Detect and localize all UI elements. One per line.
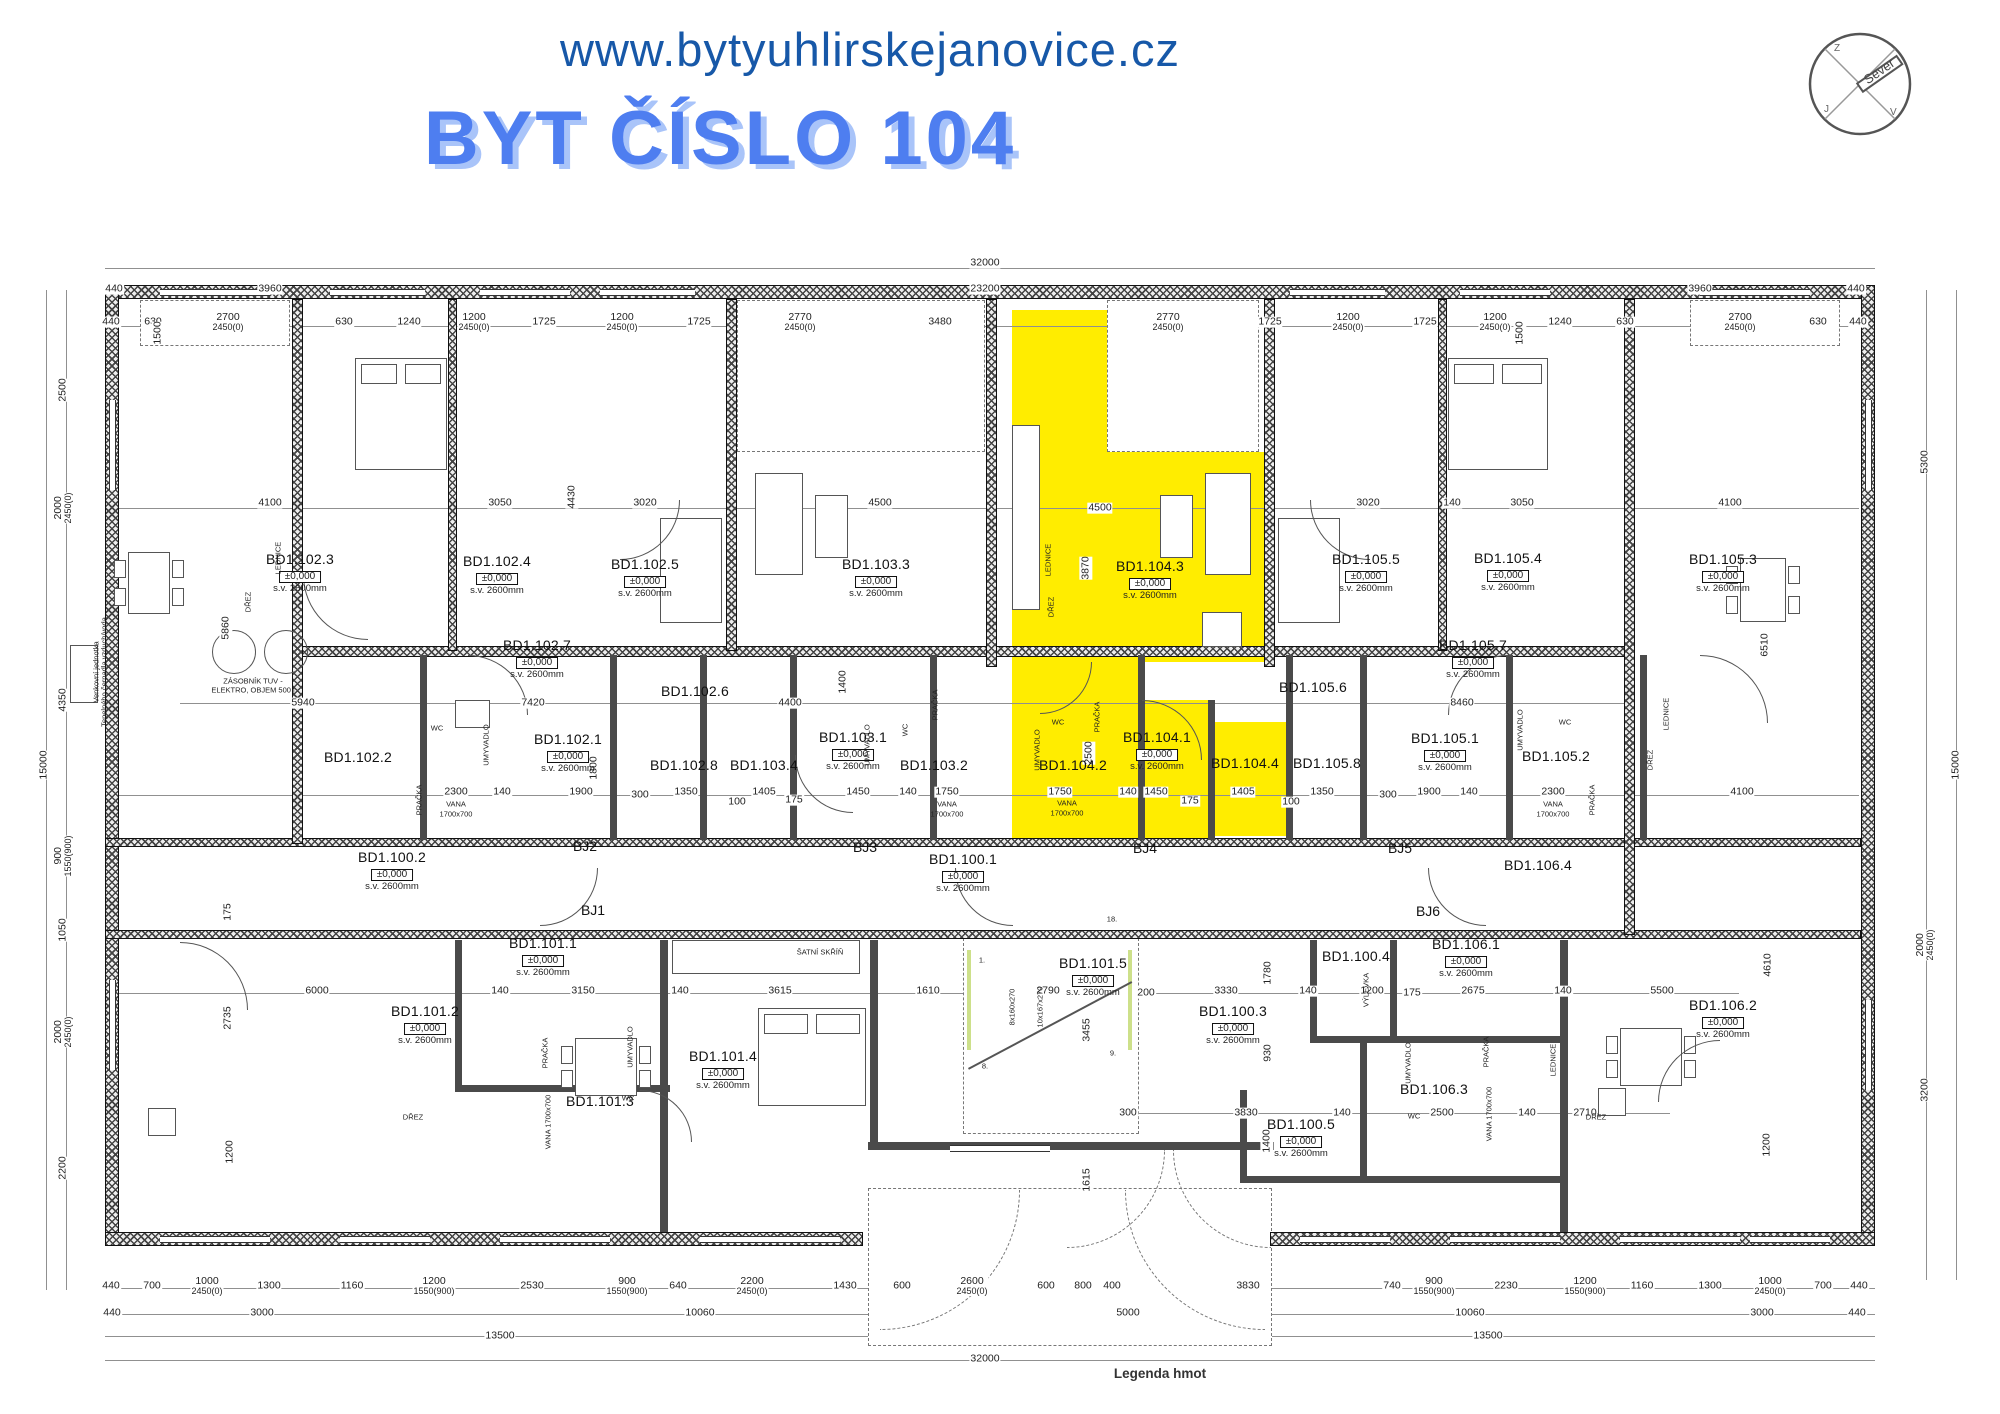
fixture-note: DŘEZ (1646, 750, 1654, 770)
dim-label: 10002450(0) (190, 1276, 223, 1296)
dim-label: 1500 (1514, 321, 1527, 344)
room-label: BD1.103.4 (730, 758, 798, 773)
dim-label: 27002450(0) (1723, 312, 1756, 332)
dim-label: 1240 (1547, 317, 1572, 328)
room-code: BD1.102.2 (324, 750, 392, 765)
room-clear-height: s.v. 2600mm (391, 1036, 459, 1046)
dim-label: 3615 (767, 986, 792, 997)
dim-label: 1405 (751, 787, 776, 798)
partition-wall (1360, 1040, 1367, 1180)
dim-label: 1300 (1697, 1281, 1722, 1292)
chair (639, 1070, 651, 1088)
partition-wall (610, 655, 617, 840)
dim-label: 800 (1073, 1281, 1093, 1292)
window (500, 1236, 610, 1243)
fixture-note: UMYVADLO (863, 724, 871, 766)
dim-label: 1240 (396, 317, 421, 328)
room-clear-height: s.v. 2600mm (1474, 583, 1542, 593)
door-arc (180, 942, 248, 1010)
room-code: BD1.106.1 (1432, 937, 1500, 952)
room-code: BD1.100.3 (1199, 1004, 1267, 1019)
room-label: BD1.106.3 (1400, 1082, 1468, 1097)
dim-sublabel: 2450(0) (64, 492, 73, 523)
dim-label: 10060 (684, 1308, 715, 1319)
wall (1624, 299, 1635, 935)
fixture-note: DŘEZ (1047, 597, 1055, 617)
room-code: BD1.105.5 (1332, 552, 1400, 567)
dim-label: 175 (1402, 988, 1422, 999)
dim-label: 9001550(900) (52, 835, 74, 876)
fixture-note: 18. (1107, 915, 1117, 923)
room-clear-height: s.v. 2600mm (1411, 763, 1479, 773)
dim-sublabel: 2450(0) (1724, 323, 1755, 332)
dim-label: 6510 (1759, 633, 1772, 656)
dim-label: 3050 (1509, 498, 1534, 509)
pillow (764, 1014, 808, 1034)
dim-label: 27702450(0) (783, 312, 816, 332)
room-elevation: ±0,000 (624, 576, 667, 589)
dim-label: 140 (1118, 787, 1138, 798)
dim-label: 1725 (1412, 317, 1437, 328)
door-arc (1700, 655, 1768, 723)
window (1450, 1236, 1560, 1243)
window (950, 1145, 1050, 1152)
room-label: BD1.102.6 (661, 684, 729, 699)
dim-label: 2200 (57, 1156, 70, 1179)
dim-label: 12002450(0) (457, 312, 490, 332)
partition-wall (868, 1142, 1274, 1150)
fixture-note: WC (1052, 718, 1065, 726)
dim-label: 12001550(900) (412, 1276, 455, 1296)
room-label: BD1.102.1±0,000s.v. 2600mm (534, 732, 602, 774)
room-clear-height: s.v. 2600mm (1432, 969, 1500, 979)
dim-label: 1160 (340, 1281, 365, 1292)
dim-label: 1900 (568, 787, 593, 798)
fixture-note: VANA (446, 800, 466, 808)
room-label: BD1.106.2±0,000s.v. 2600mm (1689, 998, 1757, 1040)
room-code: BD1.106.2 (1689, 998, 1757, 1013)
flyer-page: www.bytyuhlirskejanovice.cz BYT ČÍSLO 10… (0, 0, 2000, 1414)
fixture-note: Tepelného čerpadla vzduch/voda (100, 617, 108, 727)
dim-label: 1725 (1257, 317, 1282, 328)
room-elevation: ±0,000 (522, 955, 565, 968)
dim-label: 1610 (915, 986, 940, 997)
room-code: BD1.104.4 (1211, 756, 1279, 771)
room-label: BD1.100.3±0,000s.v. 2600mm (1199, 1004, 1267, 1046)
room-elevation: ±0,000 (516, 657, 559, 670)
dim-label: 140 (670, 986, 690, 997)
dim-label: 100 (1281, 797, 1301, 808)
dim-label: 1350 (1309, 787, 1334, 798)
room-clear-height: s.v. 2600mm (509, 968, 577, 978)
window (1300, 1236, 1390, 1243)
unit-label: BJ2 (573, 838, 597, 854)
room-elevation: ±0,000 (371, 869, 414, 882)
room-clear-height: s.v. 2600mm (819, 762, 887, 772)
room-code: BD1.103.4 (730, 758, 798, 773)
room-elevation: ±0,000 (1702, 571, 1745, 584)
dim-label: 3050 (487, 498, 512, 509)
room-clear-height: s.v. 2600mm (1059, 988, 1127, 998)
fixture-note: 1700x700 (440, 810, 473, 818)
dim-label: 175 (1180, 796, 1200, 807)
dim-label: 440 (1846, 284, 1866, 295)
room-label: BD1.105.7±0,000s.v. 2600mm (1439, 638, 1507, 680)
window (109, 400, 116, 490)
dim-sublabel: 2450(0) (458, 323, 489, 332)
window (1460, 289, 1550, 296)
room-label: BD1.103.3±0,000s.v. 2600mm (842, 557, 910, 599)
room-code: BD1.102.4 (463, 554, 531, 569)
dim-label: 400 (1102, 1281, 1122, 1292)
fixture-note: WC (622, 1094, 635, 1102)
fixture-note: UMYVADLO (626, 1026, 634, 1068)
dim-label: 175 (784, 795, 804, 806)
room-code: BD1.101.4 (689, 1049, 757, 1064)
chair (114, 588, 126, 606)
fixture-note: DŘEZ (244, 592, 252, 612)
chair (639, 1046, 651, 1064)
fixture-note: ŠATNÍ SKŘÍŇ (797, 948, 844, 956)
dim-sublabel: 2450(0) (606, 323, 637, 332)
fixture-note: VANA (937, 800, 957, 808)
dim-label: 7420 (520, 698, 545, 709)
dimension-line (180, 703, 1630, 704)
dim-label: 1615 (1081, 1168, 1094, 1191)
fixture-note: WC (1408, 1112, 1421, 1120)
room-elevation: ±0,000 (1424, 750, 1467, 763)
dim-label: 26002450(0) (955, 1276, 988, 1296)
fixture-note: UMYVADLO (1033, 729, 1041, 771)
unit-label: BJ3 (853, 839, 877, 855)
dim-label: 3960 (257, 284, 282, 295)
room-label: BD1.102.8 (650, 758, 718, 773)
dim-label: 140 (898, 787, 918, 798)
dim-label: 2735 (222, 1006, 235, 1029)
chair (1788, 566, 1800, 584)
room-code: BD1.100.2 (358, 850, 426, 865)
room-code: BD1.101.1 (509, 936, 577, 951)
pillow (1502, 364, 1542, 384)
bottom-caption: Legenda hmot (1114, 1366, 1206, 1381)
dim-label: 1350 (673, 787, 698, 798)
water-tank (212, 630, 256, 674)
dimension-line (119, 795, 1859, 796)
fixture-note: 10x167x270 (1036, 987, 1044, 1028)
room-label: BD1.100.4 (1322, 949, 1390, 964)
wall (1264, 299, 1275, 667)
pillow (1454, 364, 1494, 384)
dim-label: 32000 (969, 1354, 1000, 1365)
dim-label: 27702450(0) (1151, 312, 1184, 332)
dim-label: 12002450(0) (605, 312, 638, 332)
room-elevation: ±0,000 (855, 576, 898, 589)
room-label: BD1.102.2 (324, 750, 392, 765)
partition-wall (870, 940, 878, 1150)
wall (726, 299, 737, 651)
wall (105, 930, 1861, 939)
dim-label: 1160 (1630, 1281, 1655, 1292)
chair (1726, 596, 1738, 614)
compass-letter: Z (1834, 43, 1840, 54)
room-code: BD1.106.3 (1400, 1082, 1468, 1097)
dim-label: 140 (490, 986, 510, 997)
room-elevation: ±0,000 (1487, 570, 1530, 583)
furniture (1202, 612, 1242, 647)
dim-label: 3455 (1081, 1018, 1094, 1041)
fixture-note: PRAČKA (541, 1038, 549, 1069)
dim-label: 200 (1136, 988, 1156, 999)
fixture-note: 8x160x270 (1008, 989, 1016, 1026)
window (340, 1236, 430, 1243)
room-code: BD1.105.6 (1279, 680, 1347, 695)
fixture-note: VANA 1700x700 (544, 1095, 552, 1150)
fixture-note: PRAČKA (931, 690, 939, 721)
room-label: BD1.105.6 (1279, 680, 1347, 695)
fixture-note: PRAČKA (1482, 1037, 1490, 1068)
partition-wall (1360, 655, 1367, 840)
dim-label: 4100 (257, 498, 282, 509)
unit-label: BJ1 (581, 902, 605, 918)
room-elevation: ±0,000 (1702, 1017, 1745, 1030)
dim-sublabel: 1550(900) (1564, 1287, 1605, 1296)
dim-label: 3000 (249, 1308, 274, 1319)
dimension-line (66, 290, 67, 1290)
dim-label: 440 (101, 317, 121, 328)
room-label: BD1.105.8 (1293, 756, 1361, 771)
window (1290, 289, 1385, 296)
dim-label: 20002450(0) (1914, 929, 1936, 960)
dim-label: 3020 (632, 498, 657, 509)
fixture-note: LEDNICE (1044, 544, 1052, 577)
room-clear-height: s.v. 2600mm (1332, 584, 1400, 594)
dim-sublabel: 1550(900) (64, 835, 73, 876)
dim-label: 5940 (290, 698, 315, 709)
wall (448, 299, 457, 651)
page-title: BYT ČÍSLO 104 (0, 95, 1440, 182)
window (480, 289, 570, 296)
room-clear-height: s.v. 2600mm (1267, 1149, 1335, 1159)
room-code: BD1.101.5 (1059, 956, 1127, 971)
dim-label: 3830 (1235, 1281, 1260, 1292)
window (1750, 1236, 1830, 1243)
dim-sublabel: 1550(900) (1413, 1287, 1454, 1296)
fixture-note: VÝLEVKA (1362, 973, 1370, 1007)
pillow (816, 1014, 860, 1034)
room-elevation: ±0,000 (1445, 956, 1488, 969)
dim-label: 1900 (1416, 787, 1441, 798)
dim-label: 1450 (845, 787, 870, 798)
room-label: BD1.102.7±0,000s.v. 2600mm (503, 638, 571, 680)
room-code: BD1.104.3 (1116, 559, 1184, 574)
dim-label: 600 (1036, 1281, 1056, 1292)
dim-label: 140 (1517, 1108, 1537, 1119)
dim-label: 2230 (1493, 1281, 1518, 1292)
dim-label: 4430 (566, 485, 579, 508)
room-code: BD1.104.2 (1039, 758, 1107, 773)
dim-label: 12002450(0) (1331, 312, 1364, 332)
dim-label: 4500 (1087, 503, 1112, 514)
dim-label: 140 (1553, 986, 1573, 997)
room-label: BD1.102.4±0,000s.v. 2600mm (463, 554, 531, 596)
furniture (672, 940, 860, 974)
window (700, 1236, 840, 1243)
room-code: BD1.102.5 (611, 557, 679, 572)
pillow (361, 364, 397, 384)
dim-label: 1050 (57, 918, 70, 941)
dim-label: 2500 (57, 378, 70, 401)
room-label: BD1.103.2 (900, 758, 968, 773)
dim-label: 300 (1118, 1108, 1138, 1119)
dim-label: 1750 (1047, 787, 1072, 798)
dim-sublabel: 2450(0) (784, 323, 815, 332)
fixture-note: LEDNICE (1662, 698, 1670, 731)
dim-sublabel: 2450(0) (191, 1287, 222, 1296)
room-label: BD1.105.5±0,000s.v. 2600mm (1332, 552, 1400, 594)
dim-label: 1400 (837, 670, 850, 693)
dim-label: 140 (1332, 1108, 1352, 1119)
dim-sublabel: 2450(0) (1926, 929, 1935, 960)
room-clear-height: s.v. 2600mm (1689, 584, 1757, 594)
dim-sublabel: 2450(0) (1754, 1287, 1785, 1296)
dim-label: 3020 (1355, 498, 1380, 509)
dim-label: 440 (104, 284, 124, 295)
window (1865, 1000, 1872, 1090)
fixture-note: WC (901, 724, 909, 737)
room-label: BD1.106.4 (1504, 858, 1572, 873)
dim-label: 5860 (220, 616, 233, 639)
room-elevation: ±0,000 (702, 1068, 745, 1081)
dim-label: 1725 (531, 317, 556, 328)
dim-label: 1200 (1761, 1133, 1774, 1156)
dim-label: 740 (1382, 1281, 1402, 1292)
dim-label: 2500 (1429, 1108, 1454, 1119)
furniture (1160, 495, 1193, 558)
dim-label: 22002450(0) (735, 1276, 768, 1296)
chair (1606, 1036, 1618, 1054)
dim-label: 3200 (1919, 1078, 1932, 1101)
dim-sublabel: 2450(0) (212, 323, 243, 332)
fixture-note: ELEKTRO, OBJEM 500 l (211, 686, 294, 694)
dim-label: 23200 (969, 284, 1000, 295)
room-clear-height: s.v. 2600mm (503, 670, 571, 680)
fixture-note: ZÁSOBNÍK TUV - (223, 677, 282, 685)
dim-label: 8460 (1449, 698, 1474, 709)
dim-label: 4350 (57, 688, 70, 711)
room-code: BD1.103.3 (842, 557, 910, 572)
dim-label: 2675 (1460, 986, 1485, 997)
window (600, 289, 695, 296)
furniture (148, 1108, 176, 1136)
fixture-note: UMYVADLO (1516, 709, 1524, 751)
room-code: BD1.105.4 (1474, 551, 1542, 566)
room-code: BD1.105.1 (1411, 731, 1479, 746)
dim-label: 1725 (686, 317, 711, 328)
stair-strip (967, 950, 971, 1050)
dim-label: 4610 (1762, 953, 1775, 976)
room-label: BD1.105.4±0,000s.v. 2600mm (1474, 551, 1542, 593)
room-label: BD1.100.2±0,000s.v. 2600mm (358, 850, 426, 892)
dim-label: 140 (1298, 986, 1318, 997)
dim-label: 630 (1615, 317, 1635, 328)
fixture-note: 9. (1110, 1049, 1116, 1057)
door-arc (640, 1090, 692, 1142)
fixture-note: LEDNICE (1549, 1044, 1557, 1077)
fixture-note: PRAČKA (1588, 785, 1596, 816)
dim-label: 1430 (832, 1281, 857, 1292)
dim-label: 300 (1378, 790, 1398, 801)
dim-label: 140 (1442, 498, 1462, 509)
room-code: BD1.105.3 (1689, 552, 1757, 567)
chair (561, 1046, 573, 1064)
room-elevation: ±0,000 (1212, 1023, 1255, 1036)
fixture-note: 1. (979, 956, 985, 964)
dim-label: 3830 (1233, 1108, 1258, 1119)
dim-label: 15000 (1950, 750, 1963, 779)
dim-label: 440 (101, 1281, 121, 1292)
dim-label: 5300 (1919, 450, 1932, 473)
room-code: BD1.102.7 (503, 638, 571, 653)
partition-wall (1310, 1036, 1565, 1043)
dim-label: 140 (492, 787, 512, 798)
room-clear-height: s.v. 2600mm (929, 884, 997, 894)
dim-label: 9001550(900) (605, 1276, 648, 1296)
dim-label: 440 (102, 1308, 122, 1319)
room-elevation: ±0,000 (404, 1023, 447, 1036)
dim-label: 140 (1459, 787, 1479, 798)
chair (1788, 596, 1800, 614)
dim-label: 1500 (152, 321, 165, 344)
fixture-note: 8. (982, 1062, 988, 1070)
dim-label: 12001550(900) (1563, 1276, 1606, 1296)
chair (172, 588, 184, 606)
room-label: BD1.104.4 (1211, 756, 1279, 771)
room-elevation: ±0,000 (1280, 1136, 1323, 1149)
room-elevation: ±0,000 (1136, 749, 1179, 762)
fixture-note: WC (1559, 718, 1572, 726)
fixture-note: DŘEZ (1586, 1113, 1606, 1121)
room-label: BD1.101.5±0,000s.v. 2600mm (1059, 956, 1127, 998)
dim-label: 1300 (256, 1281, 281, 1292)
compass-icon: Sever ZJV (1800, 24, 1920, 144)
unit-label: BJ4 (1133, 840, 1157, 856)
room-clear-height: s.v. 2600mm (358, 882, 426, 892)
dim-label: 2530 (519, 1281, 544, 1292)
stair-strip (1128, 950, 1132, 1050)
dim-sublabel: 1550(900) (606, 1287, 647, 1296)
partition-wall (1240, 1176, 1565, 1183)
furniture (128, 552, 170, 614)
room-elevation: ±0,000 (1452, 657, 1495, 670)
room-code: BD1.100.1 (929, 852, 997, 867)
room-code: BD1.102.6 (661, 684, 729, 699)
room-label: BD1.101.4±0,000s.v. 2600mm (689, 1049, 757, 1091)
room-code: BD1.102.8 (650, 758, 718, 773)
fixture-note: DŘEZ (403, 1113, 423, 1121)
room-code: BD1.102.1 (534, 732, 602, 747)
room-elevation: ±0,000 (476, 573, 519, 586)
dim-label: 175 (222, 903, 235, 921)
dim-label: 600 (892, 1281, 912, 1292)
dim-label: 13500 (1472, 1331, 1503, 1342)
pillow (405, 364, 441, 384)
room-code: BD1.101.2 (391, 1004, 459, 1019)
room-label: BD1.105.1±0,000s.v. 2600mm (1411, 731, 1479, 773)
dim-label: 630 (334, 317, 354, 328)
dim-label: 4100 (1729, 787, 1754, 798)
dimension-line (1956, 290, 1957, 1280)
dim-label: 2300 (1540, 787, 1565, 798)
